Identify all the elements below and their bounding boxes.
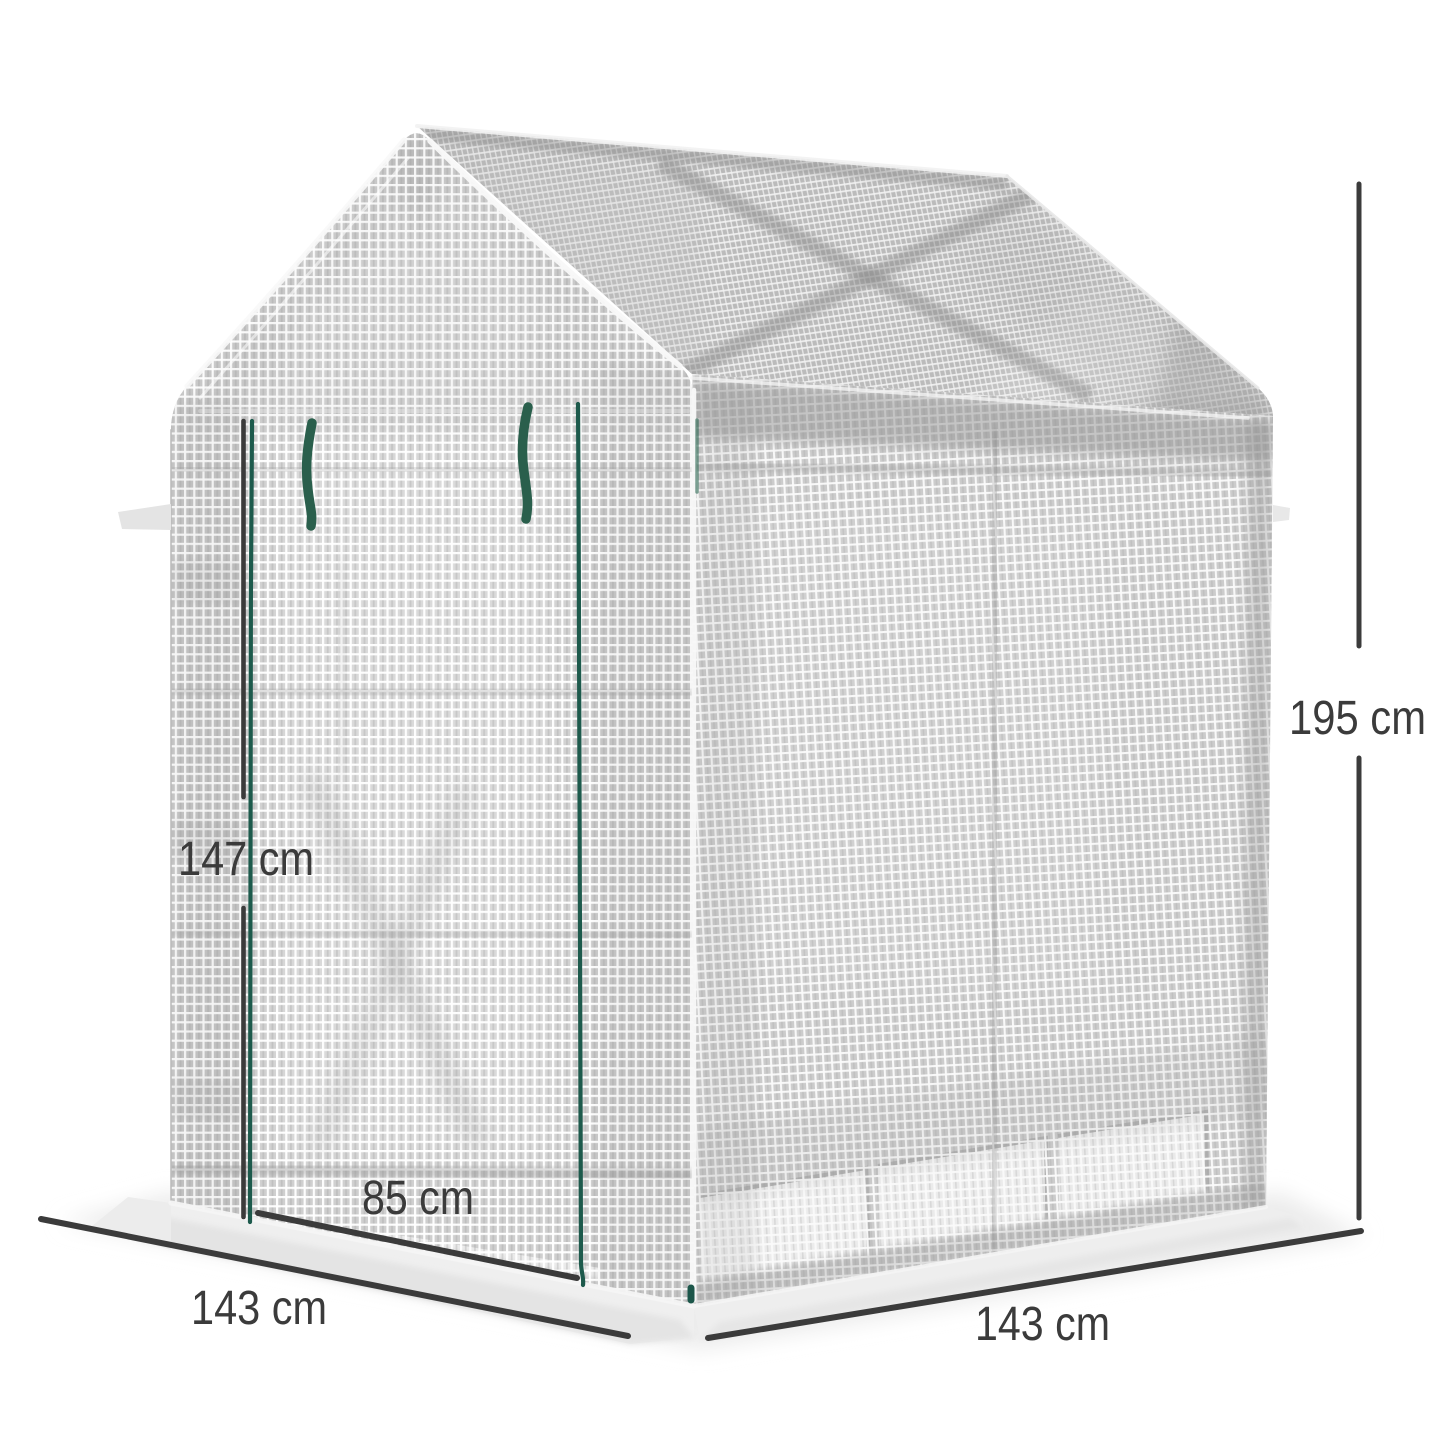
svg-text:85 cm: 85 cm — [362, 1172, 474, 1225]
svg-text:147 cm: 147 cm — [178, 833, 314, 886]
svg-text:195 cm: 195 cm — [1289, 692, 1426, 745]
svg-text:143 cm: 143 cm — [975, 1298, 1110, 1351]
svg-text:143 cm: 143 cm — [191, 1282, 327, 1335]
